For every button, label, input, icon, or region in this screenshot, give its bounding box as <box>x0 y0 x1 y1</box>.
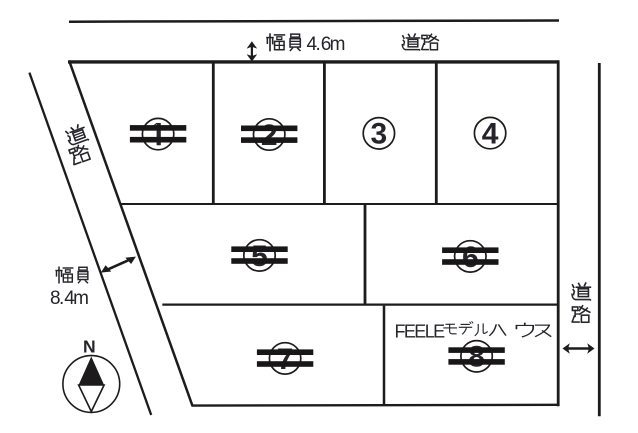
svg-text:N: N <box>83 337 96 357</box>
svg-text:4: 4 <box>482 118 499 151</box>
svg-text:7: 7 <box>277 343 294 376</box>
svg-text:6: 6 <box>462 241 479 274</box>
svg-text:8. 4m: 8. 4m <box>50 288 88 309</box>
svg-text:8: 8 <box>468 341 485 374</box>
svg-text:FEELE: FEELE <box>395 321 446 341</box>
svg-text:4. 6m: 4. 6m <box>307 34 345 55</box>
svg-text:5: 5 <box>251 240 268 273</box>
svg-text:3: 3 <box>371 118 388 151</box>
svg-text:2: 2 <box>261 119 278 152</box>
